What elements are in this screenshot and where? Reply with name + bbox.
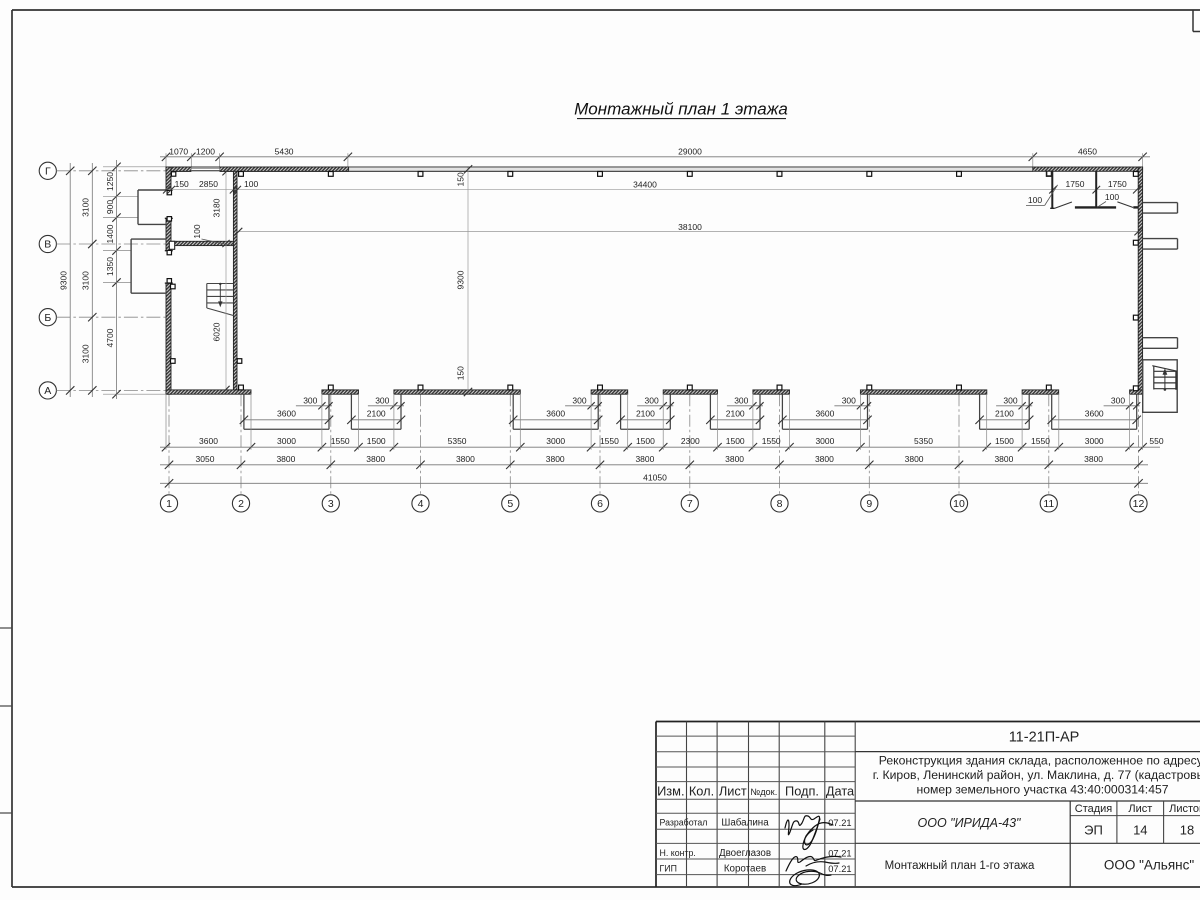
- svg-text:1500: 1500: [995, 436, 1014, 446]
- svg-text:3600: 3600: [199, 436, 218, 446]
- svg-text:3800: 3800: [366, 454, 385, 464]
- svg-text:18: 18: [1180, 823, 1194, 838]
- svg-text:В: В: [44, 239, 51, 251]
- svg-text:3100: 3100: [81, 198, 91, 217]
- svg-text:4650: 4650: [1078, 146, 1097, 156]
- svg-text:3050: 3050: [196, 454, 215, 464]
- svg-text:1550: 1550: [331, 436, 350, 446]
- svg-text:300: 300: [645, 396, 659, 406]
- svg-text:Стадия: Стадия: [1075, 803, 1113, 815]
- svg-text:100: 100: [244, 179, 258, 189]
- svg-text:3600: 3600: [815, 409, 834, 419]
- svg-text:Дата: Дата: [826, 784, 855, 799]
- svg-text:1500: 1500: [636, 436, 655, 446]
- svg-text:11: 11: [1043, 498, 1054, 510]
- svg-text:3800: 3800: [725, 454, 744, 464]
- svg-text:4700: 4700: [105, 328, 115, 347]
- svg-text:Лист: Лист: [719, 784, 747, 799]
- svg-text:3000: 3000: [1085, 436, 1104, 446]
- svg-text:1550: 1550: [762, 436, 781, 446]
- svg-text:100: 100: [192, 224, 202, 238]
- svg-text:3800: 3800: [905, 454, 924, 464]
- svg-text:1550: 1550: [600, 436, 619, 446]
- svg-text:Лист: Лист: [1128, 803, 1152, 815]
- svg-text:3000: 3000: [815, 436, 834, 446]
- svg-text:номер земельного участка 43:40: номер земельного участка 43:40:000314:45…: [916, 783, 1168, 797]
- svg-text:2100: 2100: [367, 409, 386, 419]
- svg-text:300: 300: [1111, 396, 1125, 406]
- svg-text:300: 300: [842, 396, 856, 406]
- svg-text:ООО "ИРИДА-43": ООО "ИРИДА-43": [918, 816, 1022, 830]
- svg-text:150: 150: [456, 172, 466, 186]
- svg-text:550: 550: [1149, 436, 1163, 446]
- svg-text:3800: 3800: [1084, 454, 1103, 464]
- svg-text:ГИП: ГИП: [660, 863, 677, 873]
- svg-text:3100: 3100: [81, 344, 91, 363]
- svg-text:1400: 1400: [105, 224, 115, 243]
- svg-text:3600: 3600: [277, 409, 296, 419]
- svg-text:100: 100: [1105, 192, 1119, 202]
- svg-text:3800: 3800: [546, 454, 565, 464]
- svg-text:2100: 2100: [726, 409, 745, 419]
- svg-text:ЭП: ЭП: [1084, 823, 1103, 838]
- svg-text:300: 300: [572, 396, 586, 406]
- svg-text:Изм.: Изм.: [657, 784, 684, 799]
- svg-text:900: 900: [105, 200, 115, 214]
- svg-text:100: 100: [1028, 195, 1042, 205]
- svg-text:Г: Г: [45, 165, 51, 177]
- svg-text:150: 150: [456, 366, 466, 380]
- svg-text:1350: 1350: [105, 257, 115, 276]
- svg-text:1070: 1070: [169, 146, 188, 156]
- svg-text:1250: 1250: [105, 172, 115, 191]
- svg-text:6: 6: [597, 498, 603, 510]
- svg-text:2100: 2100: [636, 409, 655, 419]
- svg-text:5350: 5350: [914, 436, 933, 446]
- svg-text:2850: 2850: [199, 179, 218, 189]
- svg-text:3800: 3800: [815, 454, 834, 464]
- svg-text:Реконструкция здания склада, р: Реконструкция здания склада, расположенн…: [879, 753, 1200, 767]
- svg-text:6020: 6020: [211, 322, 221, 341]
- svg-text:г. Киров, Ленинский район, ул.: г. Киров, Ленинский район, ул. Маклина, …: [873, 768, 1200, 782]
- svg-text:Разработал: Разработал: [660, 817, 708, 827]
- svg-text:1500: 1500: [367, 436, 386, 446]
- svg-text:Коротаев: Коротаев: [724, 863, 766, 874]
- svg-text:10: 10: [953, 498, 965, 510]
- svg-text:2: 2: [238, 498, 244, 510]
- svg-text:41050: 41050: [643, 472, 667, 482]
- svg-text:9300: 9300: [59, 271, 69, 290]
- svg-text:3: 3: [328, 498, 334, 510]
- svg-text:Б: Б: [44, 312, 51, 324]
- svg-text:5430: 5430: [275, 146, 294, 156]
- svg-text:2300: 2300: [681, 436, 700, 446]
- svg-text:№док.: №док.: [750, 787, 777, 797]
- svg-text:300: 300: [734, 396, 748, 406]
- svg-text:Листов: Листов: [1169, 803, 1200, 815]
- svg-text:Шабалина: Шабалина: [721, 817, 769, 828]
- svg-text:1550: 1550: [1031, 436, 1050, 446]
- svg-text:29000: 29000: [678, 146, 702, 156]
- svg-text:34400: 34400: [633, 180, 657, 190]
- svg-text:4: 4: [418, 498, 424, 510]
- svg-text:7: 7: [687, 498, 693, 510]
- svg-text:Монтажный план 1-го этажа: Монтажный план 1-го этажа: [885, 860, 1035, 872]
- svg-text:300: 300: [375, 396, 389, 406]
- svg-text:Н. контр.: Н. контр.: [660, 848, 696, 858]
- svg-text:12: 12: [1133, 498, 1145, 510]
- svg-text:3600: 3600: [1085, 409, 1104, 419]
- svg-text:3180: 3180: [211, 198, 221, 217]
- svg-text:ООО "Альянс": ООО "Альянс": [1104, 858, 1194, 873]
- svg-text:38100: 38100: [678, 222, 702, 232]
- svg-text:150: 150: [175, 179, 189, 189]
- svg-text:3800: 3800: [456, 454, 475, 464]
- svg-text:3000: 3000: [546, 436, 565, 446]
- svg-text:07.21: 07.21: [828, 864, 851, 874]
- svg-text:1750: 1750: [1108, 179, 1127, 189]
- svg-text:11-21П-АР: 11-21П-АР: [1009, 730, 1080, 746]
- svg-text:300: 300: [303, 396, 317, 406]
- svg-text:14: 14: [1133, 823, 1147, 838]
- svg-text:Подп.: Подп.: [785, 784, 819, 799]
- svg-text:300: 300: [1003, 396, 1017, 406]
- svg-text:1: 1: [166, 498, 172, 510]
- svg-text:3800: 3800: [276, 454, 295, 464]
- svg-text:Кол.: Кол.: [689, 784, 714, 799]
- svg-text:9: 9: [866, 498, 872, 510]
- svg-text:5: 5: [507, 498, 513, 510]
- svg-text:3800: 3800: [635, 454, 654, 464]
- svg-text:3600: 3600: [546, 409, 565, 419]
- svg-text:Двоеглазов: Двоеглазов: [719, 848, 771, 859]
- svg-text:07.21: 07.21: [828, 818, 851, 828]
- svg-text:3100: 3100: [81, 271, 91, 290]
- svg-text:9300: 9300: [456, 270, 466, 289]
- svg-text:1500: 1500: [726, 436, 745, 446]
- svg-text:8: 8: [777, 498, 783, 510]
- svg-text:3800: 3800: [994, 454, 1013, 464]
- svg-text:3000: 3000: [277, 436, 296, 446]
- svg-text:1750: 1750: [1066, 179, 1085, 189]
- svg-text:1200: 1200: [196, 146, 215, 156]
- svg-text:Монтажный план 1 этажа: Монтажный план 1 этажа: [574, 100, 788, 119]
- svg-text:2100: 2100: [995, 409, 1014, 419]
- svg-text:5350: 5350: [448, 436, 467, 446]
- svg-text:А: А: [44, 385, 51, 397]
